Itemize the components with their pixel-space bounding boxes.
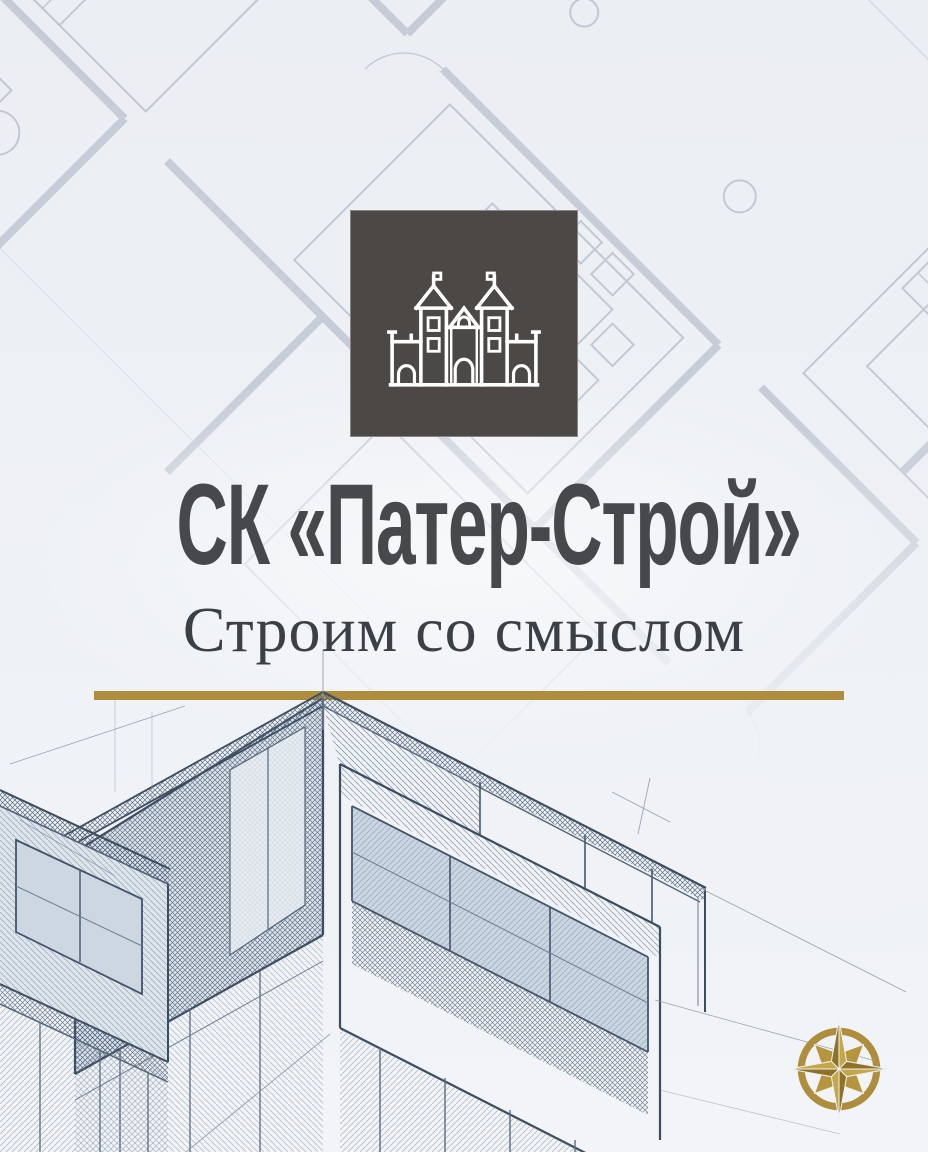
gold-divider — [94, 691, 844, 700]
company-name: СК «Патер-Строй» — [176, 462, 751, 589]
compass-rose-icon — [786, 1016, 892, 1122]
poster-canvas: СК «Патер-Строй» Строим со смыслом — [0, 0, 928, 1152]
logo-square — [350, 210, 578, 437]
company-tagline: Строим со смыслом — [0, 598, 928, 662]
castle-logo-icon — [376, 265, 552, 396]
